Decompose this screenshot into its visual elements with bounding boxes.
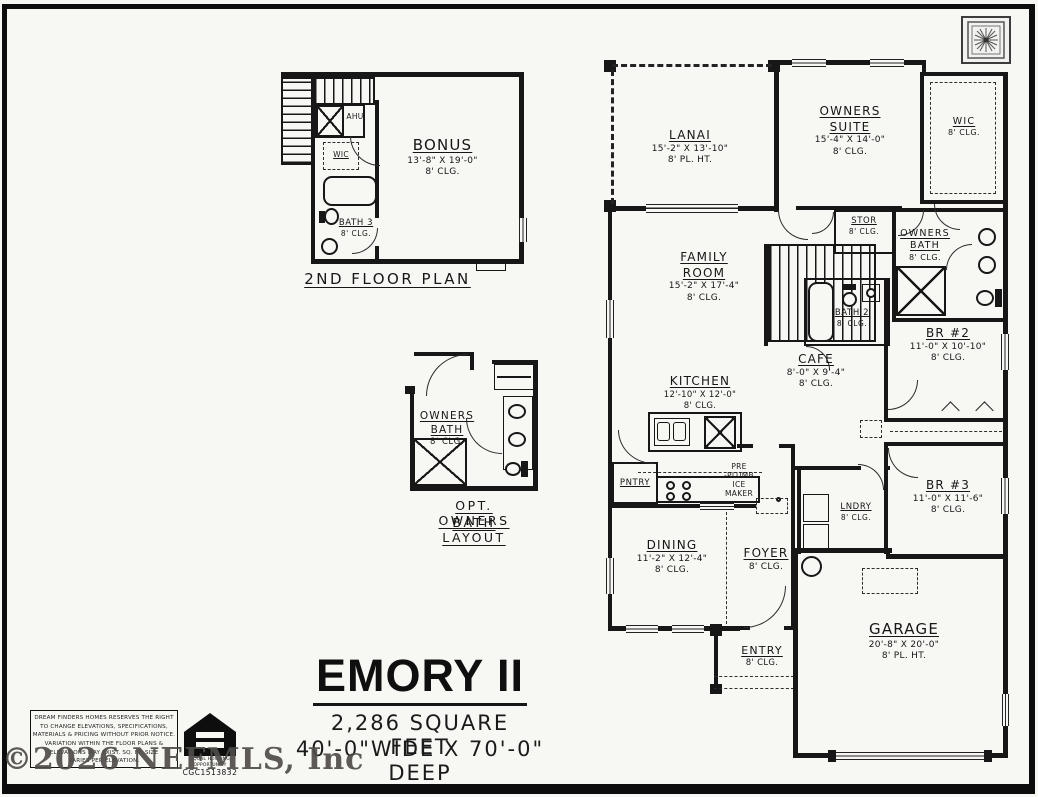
ice-maker-note: PRE -PLUMB ICE MAKER [716, 462, 762, 498]
wall-segment: TO CHANGE ELEVATIONS, SPECIFICATIONS, [31, 723, 177, 732]
wall-segment: ICE [716, 480, 762, 489]
wall-segment: 13'-8" X 19'-0" [390, 156, 495, 168]
wall-segment: FAMILY [658, 250, 750, 266]
sink [978, 256, 996, 274]
wall-segment: AHU [346, 112, 363, 121]
sliding-door [646, 204, 738, 213]
wall-segment [922, 72, 1008, 76]
wall-segment: DINING [622, 538, 722, 554]
wall-segment: LNDRY [830, 502, 882, 513]
wall-segment: 8' PL. HT. [640, 155, 740, 167]
wall-segment: GARAGE [846, 620, 962, 640]
wall-segment [995, 289, 1002, 307]
sink [866, 288, 876, 298]
wall-segment: 8' CLG. [390, 167, 495, 179]
wall-segment: KITCHEN [646, 374, 754, 390]
room-label-wic: WIC 8' CLG. [938, 116, 990, 139]
wall-segment: WIC [938, 116, 990, 128]
room-label-lanai: LANAI 15'-2" X 13'-10" 8' PL. HT. [640, 128, 740, 167]
wall-segment [828, 750, 836, 762]
room-label-br3: BR #3 11'-0" X 11'-6" 8' CLG. [900, 478, 996, 517]
toilet [505, 462, 521, 476]
wall-segment [886, 554, 1008, 559]
wall-segment: 15'-2" X 13'-10" [640, 144, 740, 156]
wall-segment: 8' CLG. [798, 147, 902, 159]
wall-segment [410, 486, 538, 491]
room-label-bath2: BATH 2 8' CLG. [824, 308, 880, 329]
toilet [976, 290, 994, 306]
porch-edge [714, 688, 794, 690]
room-label-owners-suite: OWNERS SUITE 15'-4" X 14'-0" 8' CLG. [798, 104, 902, 159]
wall-segment: BR #3 [900, 478, 996, 494]
wall-segment [657, 422, 670, 441]
wall-segment: 2ND FLOOR PLAN [304, 270, 471, 288]
sink [508, 432, 526, 447]
second-floor-caption: 2ND FLOOR PLAN [300, 270, 475, 288]
attic-access [862, 568, 918, 594]
bifold-door [975, 401, 993, 419]
wall-segment [884, 418, 1008, 422]
room-label-entry: ENTRY 8' CLG. [734, 644, 790, 669]
wall-segment: OWNERS [798, 104, 902, 120]
wall-segment [497, 376, 531, 378]
wall-segment [1003, 72, 1008, 758]
wall-segment [714, 630, 718, 688]
door-arc [858, 464, 884, 490]
bifold-door [941, 401, 959, 419]
room-label-owners-bath: OWNERS BATH 8' CLG. [896, 228, 954, 263]
wall-segment [737, 444, 753, 448]
screen-wall [611, 70, 614, 204]
room-label-opt-owners-bath: OWNERS BATH 8' CLG. [414, 410, 480, 448]
door-arc [426, 354, 468, 396]
plan-name: EMORY II [280, 650, 560, 702]
wall-segment [797, 466, 801, 554]
ice-maker-box [756, 498, 788, 514]
wall-segment: ENTRY [734, 644, 790, 658]
room-label-garage: GARAGE 20'-8" X 20'-0" 8' PL. HT. [846, 620, 962, 663]
wall-segment [470, 352, 474, 370]
room-label-br2: BR #2 11'-0" X 10'-10" 8' CLG. [900, 326, 996, 365]
wall-segment [793, 548, 798, 758]
opt-bath-caption-line2: BATH LAYOUT [418, 515, 530, 545]
wall-segment: 8'-0" X 9'-4" [772, 368, 860, 380]
door-arc [888, 448, 918, 478]
wall-segment: FOYER [738, 546, 794, 562]
wall-segment: 8' PL. HT. [846, 651, 962, 663]
wall-segment: STOR [838, 216, 890, 227]
title-underline [313, 703, 527, 706]
closet-shelf [890, 431, 1002, 433]
window [606, 558, 614, 594]
burner [682, 492, 691, 501]
window [606, 300, 614, 338]
wall-segment: BONUS [390, 136, 495, 156]
wall-segment: 8' CLG. [658, 293, 750, 305]
wall-segment: 8' CLG. [622, 565, 722, 577]
wall-segment: 8' CLG. [900, 505, 996, 517]
burner [666, 481, 675, 490]
window [1001, 334, 1009, 370]
wall-segment: WIC [333, 150, 349, 159]
shower [896, 266, 946, 316]
room-label-kitchen: KITCHEN 12'-10" X 12'-0" 8' CLG. [646, 374, 754, 412]
water-heater [801, 556, 822, 577]
room-label-pantry: PNTRY [614, 478, 656, 489]
wall-segment [405, 386, 415, 394]
window [870, 59, 904, 67]
wall-segment: 15'-4" X 14'-0" [798, 135, 902, 147]
wall-segment: 20'-8" X 20'-0" [846, 640, 962, 652]
porch-edge [714, 676, 794, 678]
burner [666, 492, 675, 501]
stairs [313, 77, 375, 105]
wall-segment: BR #2 [900, 326, 996, 342]
wall-segment: SUITE [798, 120, 902, 136]
room-label-cafe: CAFE 8'-0" X 9'-4" 8' CLG. [772, 352, 860, 391]
door-arc [778, 210, 808, 240]
wall-segment: 8' CLG. [646, 401, 754, 412]
wall-segment: 8' CLG. [738, 562, 794, 574]
room-label-family-room: FAMILY ROOM 15'-2" X 17'-4" 8' CLG. [658, 250, 750, 305]
wall-segment: CAFE [772, 352, 860, 368]
window [792, 59, 826, 67]
window [1001, 478, 1009, 514]
wall-segment [984, 750, 992, 762]
room-label-lndry: LNDRY 8' CLG. [830, 502, 882, 523]
wall-segment: 8' CLG. [414, 437, 480, 448]
wall-segment: 8' CLG. [938, 128, 990, 138]
room-label-dining: DINING 11'-2" X 12'-4" 8' CLG. [622, 538, 722, 577]
wall-segment [892, 318, 1008, 322]
bathtub [323, 176, 377, 206]
wall-segment [963, 18, 1009, 62]
wall-segment: 8' CLG. [900, 353, 996, 365]
wall-segment: BATH [896, 240, 954, 252]
wall-segment: 8' CLG. [896, 253, 954, 263]
wall-segment: 8' CLG. [332, 229, 380, 239]
ahu-label: AHU [344, 112, 366, 121]
mls-watermark: ©2026 NEFMLS, Inc [2, 742, 364, 777]
room-label-bonus: BONUS 13'-8" X 19'-0" 8' CLG. [390, 136, 495, 179]
wall-segment: MATERIALS & PRICING WITHOUT PRIOR NOTICE… [31, 731, 177, 740]
room-label-bath3: BATH 3 8' CLG. [332, 218, 380, 239]
window [626, 625, 658, 633]
door-step [476, 262, 506, 271]
wall-segment: 12'-10" X 12'-0" [646, 390, 754, 401]
wall-segment: 8' CLG. [838, 227, 890, 237]
wall-segment: BATH 3 [332, 218, 380, 229]
wall-segment: 8' CLG. [824, 319, 880, 329]
sink [978, 228, 996, 246]
cased-opening [700, 503, 734, 510]
stairs [281, 77, 313, 165]
wall-segment: MAKER [716, 489, 762, 498]
burner [682, 481, 691, 490]
wall-segment: BATH 2 [824, 308, 880, 319]
wall-segment [884, 446, 888, 554]
sink [321, 238, 338, 255]
sink [508, 404, 526, 419]
screen-wall [612, 64, 772, 67]
window [672, 625, 704, 633]
wall-segment: LANAI [640, 128, 740, 144]
wall-segment [710, 624, 722, 636]
wall-segment: BATH [414, 424, 480, 438]
door-arc [618, 430, 654, 464]
wall-segment: OWNERS [414, 410, 480, 424]
ahu-unit [316, 105, 344, 137]
wic-label: WIC [325, 150, 357, 159]
cased-opening [726, 512, 728, 624]
wall-segment: OWNERS [896, 228, 954, 240]
linen-closet [860, 420, 882, 438]
wall-segment [920, 72, 924, 204]
wall-segment: -PLUMB [716, 471, 762, 480]
washer [803, 494, 829, 522]
wall-segment [521, 461, 528, 477]
front-door-arc [744, 586, 786, 628]
wall-segment: 11'-2" X 12'-4" [622, 554, 722, 566]
island-fixture [704, 416, 736, 449]
wall-segment: BATH LAYOUT [442, 515, 505, 545]
wall-segment [319, 211, 325, 223]
compass-medallion-icon [961, 16, 1011, 64]
wall-segment: ROOM [658, 266, 750, 282]
floor-plan-sheet: AHU WIC BONUS 13'-8" X 19'-0" 8' CLG. BA… [0, 0, 1038, 797]
wall-segment: 11'-0" X 10'-10" [900, 342, 996, 354]
wall-segment [884, 442, 1008, 446]
wall-segment: 8' CLG. [772, 379, 860, 391]
wall-segment [842, 284, 856, 290]
room-label-foyer: FOYER 8' CLG. [738, 546, 794, 573]
door-arc [888, 380, 918, 410]
wall-segment: 8' CLG. [734, 658, 790, 669]
wall-segment [793, 548, 892, 553]
door-arc [812, 212, 834, 234]
wall-segment: PRE [716, 462, 762, 471]
wall-segment [774, 60, 779, 212]
toilet [842, 292, 857, 307]
wall-segment [673, 422, 686, 441]
garage-door [834, 752, 986, 760]
wall-segment [884, 466, 890, 470]
wall-segment [375, 246, 379, 262]
wall-segment: PNTRY [614, 478, 656, 489]
service-door [1002, 694, 1009, 726]
wall-segment [791, 466, 861, 470]
wall-segment: 11'-0" X 11'-6" [900, 494, 996, 506]
room-label-stor: STOR 8' CLG. [838, 216, 890, 237]
wall-segment: DREAM FINDERS HOMES RESERVES THE RIGHT [31, 714, 177, 723]
wall-segment: 15'-2" X 17'-4" [658, 281, 750, 293]
wall-segment [886, 548, 890, 558]
window [519, 218, 527, 242]
door-arc [934, 204, 960, 230]
wall-segment: 8' CLG. [830, 513, 882, 523]
